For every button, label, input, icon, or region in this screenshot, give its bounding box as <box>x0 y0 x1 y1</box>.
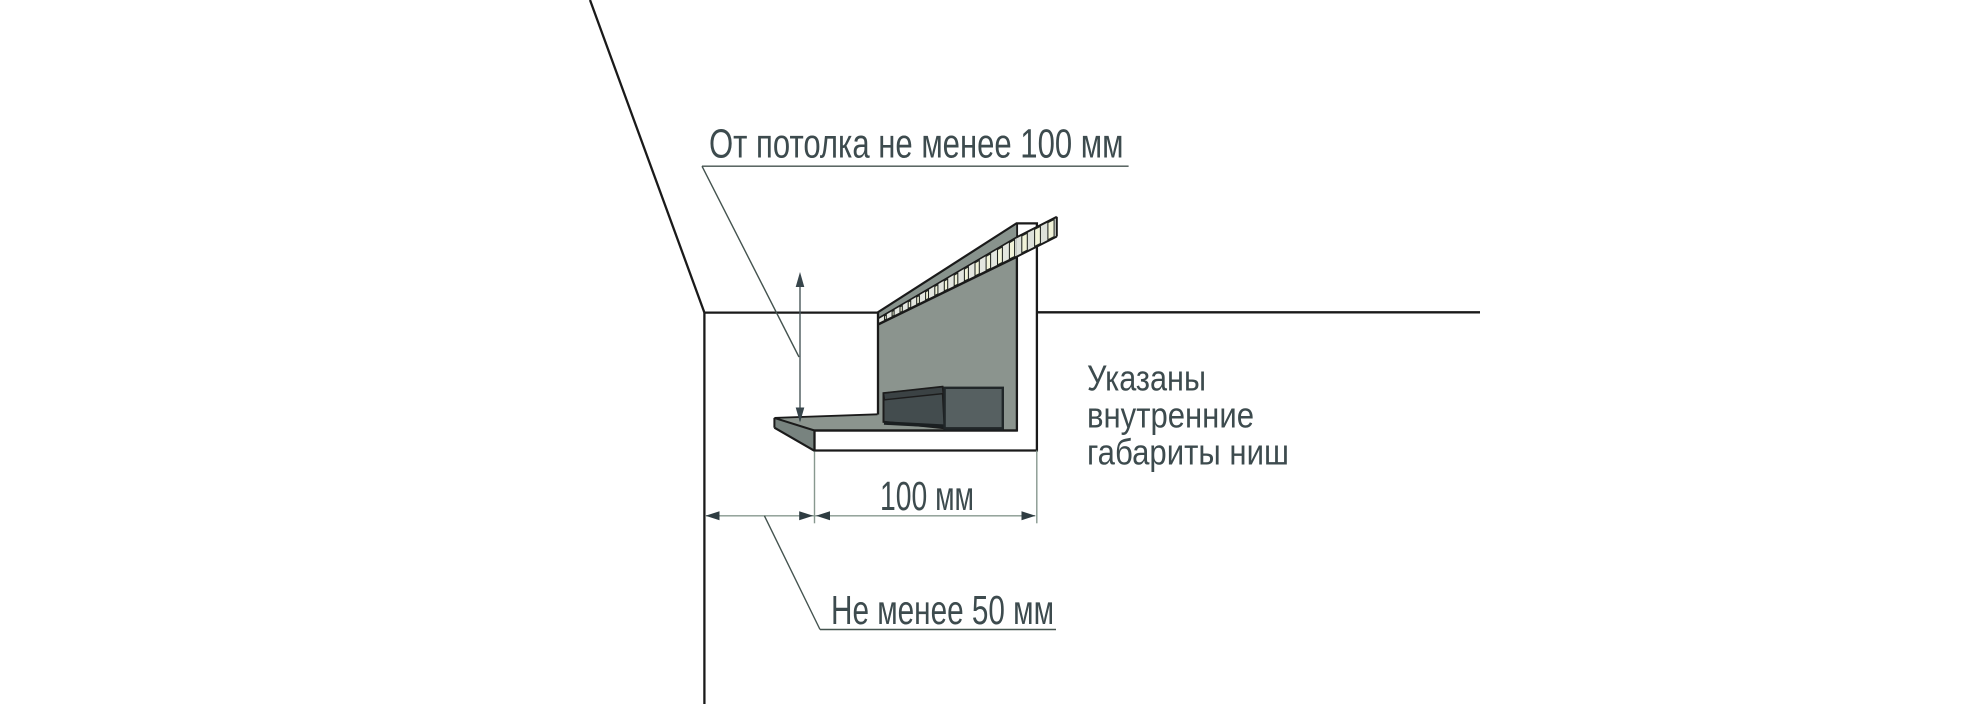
svg-text:От потолка не менее 100 мм: От потолка не менее 100 мм <box>709 120 1124 166</box>
svg-text:Указаны: Указаны <box>1087 358 1206 399</box>
svg-text:100 мм: 100 мм <box>880 473 974 519</box>
svg-text:Не менее 50 мм: Не менее 50 мм <box>831 587 1054 633</box>
svg-text:габариты ниш: габариты ниш <box>1087 432 1289 473</box>
svg-text:внутренние: внутренние <box>1087 395 1254 436</box>
